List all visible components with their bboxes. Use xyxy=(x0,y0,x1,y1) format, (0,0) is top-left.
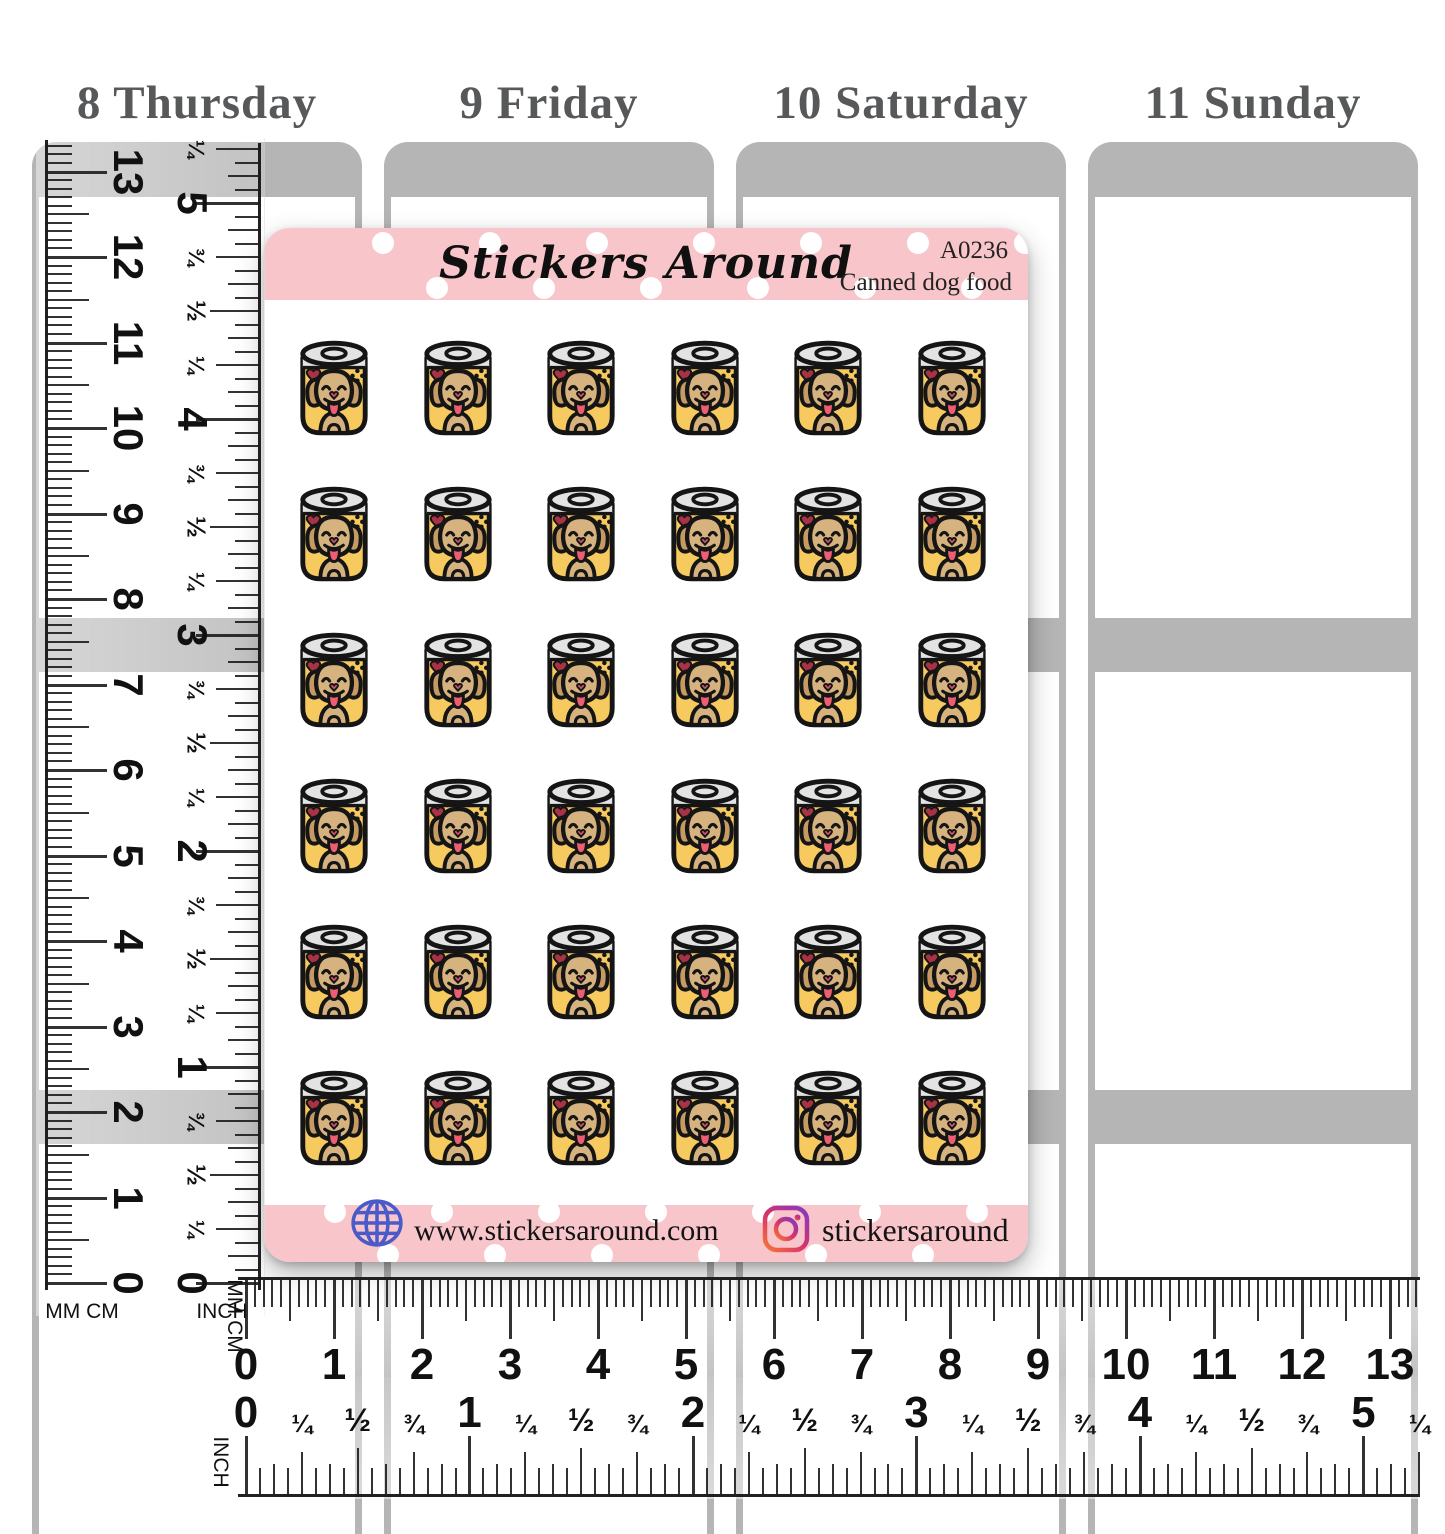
cm-ruler-tick xyxy=(1072,1279,1074,1307)
canned-dog-food-sticker xyxy=(666,776,744,876)
polka-dot xyxy=(324,1201,346,1223)
canned-dog-food-sticker xyxy=(666,630,744,730)
sticker-sheet: Stickers Around A0236 Canned dog food ww… xyxy=(264,228,1028,1262)
cm-ruler-tick xyxy=(368,1279,370,1307)
canned-dog-food-sticker xyxy=(913,776,991,876)
canned-dog-food-sticker xyxy=(542,630,620,730)
canned-dog-food-sticker xyxy=(913,922,991,1022)
planner-column xyxy=(1088,142,1418,1534)
canned-dog-food-sticker xyxy=(419,630,497,730)
day-heading: 11 Sunday xyxy=(1145,76,1362,130)
canned-dog-food-sticker xyxy=(542,338,620,438)
instagram-icon xyxy=(762,1205,810,1253)
inch-ruler-tick xyxy=(720,1464,722,1494)
canned-dog-food-sticker xyxy=(666,338,744,438)
canned-dog-food-sticker xyxy=(295,338,373,438)
product-sku: A0236 xyxy=(940,237,1008,265)
day-heading: 9 Friday xyxy=(459,76,638,130)
canned-dog-food-sticker xyxy=(295,630,373,730)
planner-column-header xyxy=(1088,142,1418,197)
day-heading: 8 Thursday xyxy=(77,76,317,130)
cm-ruler-tick xyxy=(1081,1279,1083,1321)
planner-column-border xyxy=(1059,197,1066,1534)
canned-dog-food-sticker xyxy=(913,1068,991,1168)
instagram-handle: stickersaround xyxy=(822,1212,1009,1249)
canned-dog-food-sticker xyxy=(542,922,620,1022)
canned-dog-food-sticker xyxy=(419,776,497,876)
canned-dog-food-sticker xyxy=(666,1068,744,1168)
planner-column-border xyxy=(1411,197,1418,1534)
globe-icon xyxy=(350,1196,404,1250)
planner-column-border xyxy=(1088,197,1095,1534)
canned-dog-food-sticker xyxy=(789,630,867,730)
canned-dog-food-sticker xyxy=(789,484,867,584)
canned-dog-food-sticker xyxy=(789,1068,867,1168)
planner-column-header xyxy=(384,142,714,197)
planner-column-header xyxy=(32,142,362,197)
canned-dog-food-sticker xyxy=(913,484,991,584)
canned-dog-food-sticker xyxy=(542,484,620,584)
product-image: Stickers Around A0236 Canned dog food ww… xyxy=(0,0,1445,1534)
canned-dog-food-sticker xyxy=(419,1068,497,1168)
canned-dog-food-sticker xyxy=(542,776,620,876)
canned-dog-food-sticker xyxy=(419,922,497,1022)
canned-dog-food-sticker xyxy=(419,338,497,438)
planner-column-header xyxy=(736,142,1066,197)
canned-dog-food-sticker xyxy=(789,776,867,876)
day-heading: 10 Saturday xyxy=(773,76,1028,130)
canned-dog-food-sticker xyxy=(913,338,991,438)
planner-row-divider xyxy=(1095,1090,1411,1144)
canned-dog-food-sticker xyxy=(789,922,867,1022)
canned-dog-food-sticker xyxy=(295,922,373,1022)
planner-column-border xyxy=(32,197,39,1534)
canned-dog-food-sticker xyxy=(789,338,867,438)
canned-dog-food-sticker xyxy=(542,1068,620,1168)
canned-dog-food-sticker xyxy=(666,922,744,1022)
cm-ruler-tick xyxy=(377,1279,379,1321)
website-url: www.stickersaround.com xyxy=(414,1214,719,1248)
cm-ruler-tick xyxy=(729,1279,731,1321)
canned-dog-food-sticker xyxy=(913,630,991,730)
inch-ruler-tick xyxy=(1083,1452,1085,1494)
canned-dog-food-sticker xyxy=(295,484,373,584)
canned-dog-food-sticker xyxy=(295,1068,373,1168)
inch-ruler-tick xyxy=(1069,1468,1071,1494)
planner-row-divider xyxy=(1095,618,1411,672)
product-name: Canned dog food xyxy=(840,269,1012,297)
canned-dog-food-sticker xyxy=(295,776,373,876)
planner-column-body xyxy=(1095,197,1411,1534)
cm-ruler-tick xyxy=(720,1279,722,1307)
canned-dog-food-sticker xyxy=(666,484,744,584)
inch-ruler-tick xyxy=(1418,1452,1420,1494)
inch-ruler-tick xyxy=(371,1468,373,1494)
canned-dog-food-sticker xyxy=(419,484,497,584)
